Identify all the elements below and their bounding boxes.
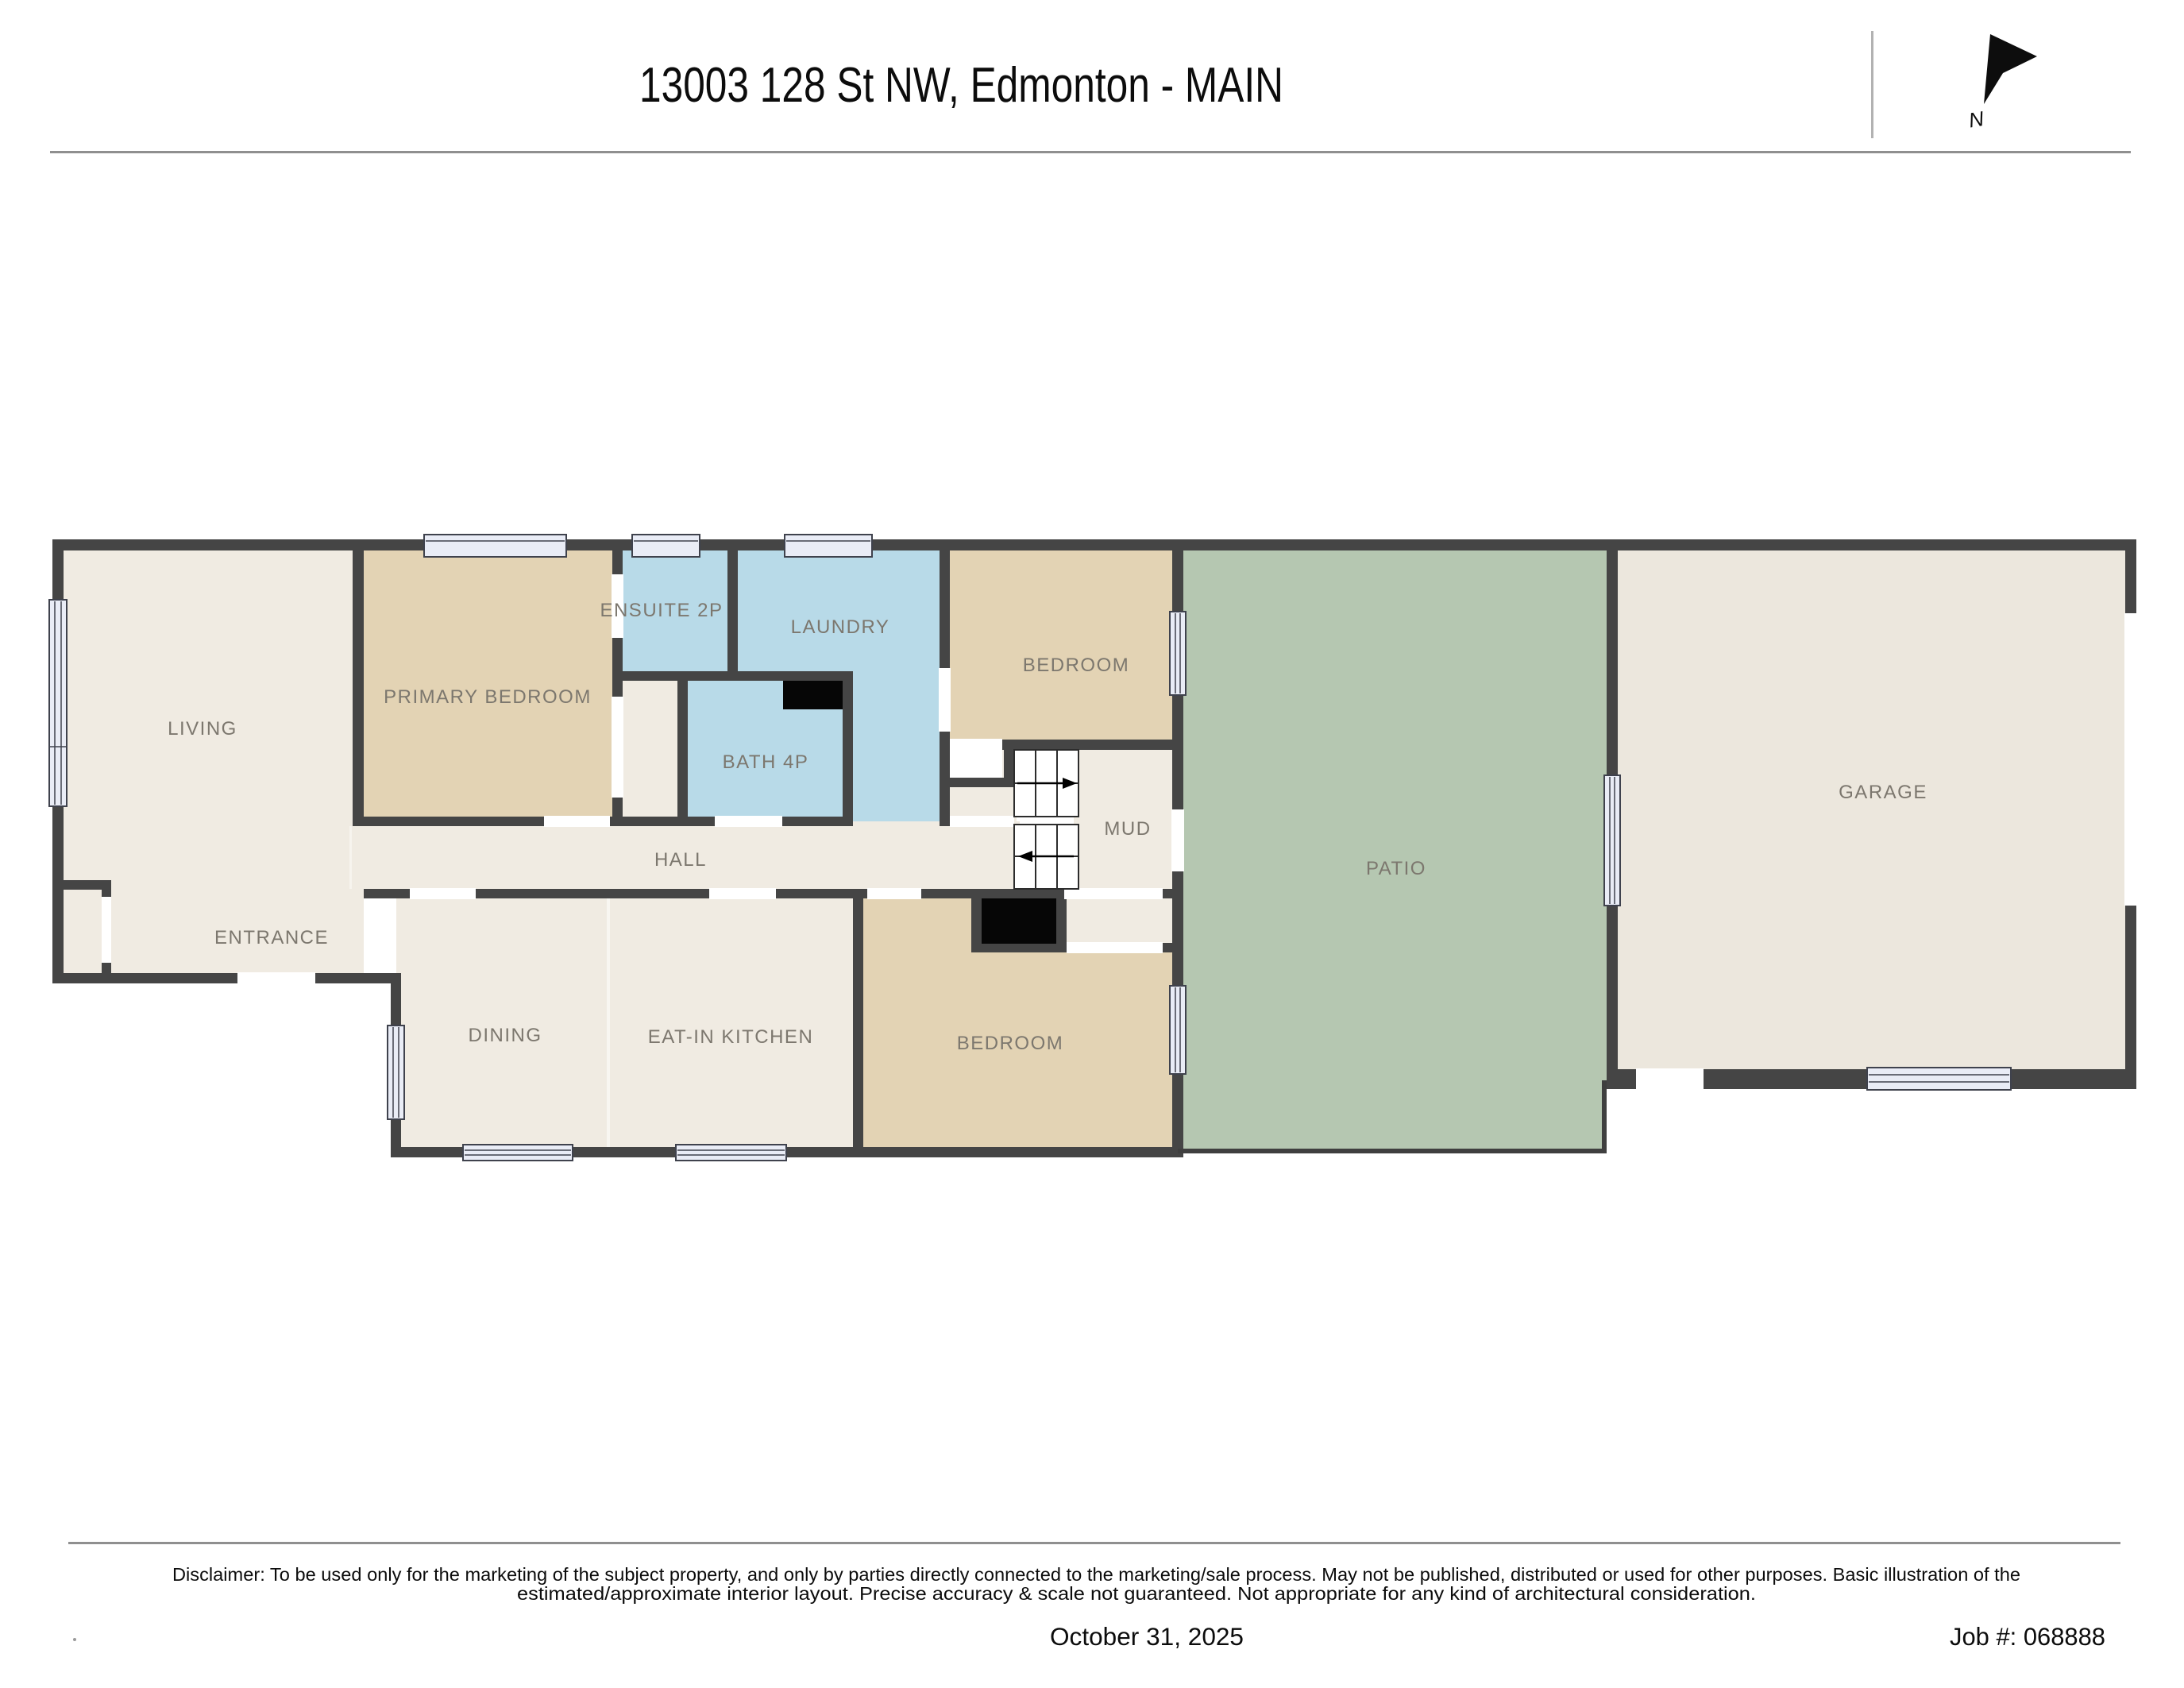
svg-text:ENTRANCE: ENTRANCE — [214, 927, 329, 948]
svg-text:October 31, 2025: October 31, 2025 — [1050, 1622, 1244, 1651]
svg-text:LAUNDRY: LAUNDRY — [791, 616, 890, 638]
svg-text:13003 128 St NW, Edmonton - MA: 13003 128 St NW, Edmonton - MAIN — [639, 58, 1283, 113]
svg-text:EAT-IN KITCHEN: EAT-IN KITCHEN — [648, 1026, 814, 1048]
svg-text:BEDROOM: BEDROOM — [957, 1033, 1064, 1054]
svg-text:DINING: DINING — [469, 1025, 542, 1046]
svg-text:Disclaimer: To be used only fo: Disclaimer: To be used only for the mark… — [172, 1564, 2020, 1585]
svg-text:MUD: MUD — [1104, 818, 1151, 840]
svg-text:PATIO: PATIO — [1366, 858, 1426, 879]
svg-text:HALL: HALL — [654, 849, 707, 871]
svg-text:Job #: 068888: Job #: 068888 — [1950, 1622, 2105, 1651]
svg-text:estimated/approximate interior: estimated/approximate interior layout. P… — [517, 1583, 1756, 1604]
svg-text:LIVING: LIVING — [168, 718, 237, 740]
svg-text:BATH 4P: BATH 4P — [723, 751, 809, 773]
svg-text:PRIMARY BEDROOM: PRIMARY BEDROOM — [384, 686, 592, 708]
svg-text:ENSUITE 2P: ENSUITE 2P — [600, 600, 723, 621]
svg-text:GARAGE: GARAGE — [1839, 782, 1927, 803]
svg-text:BEDROOM: BEDROOM — [1023, 655, 1130, 676]
